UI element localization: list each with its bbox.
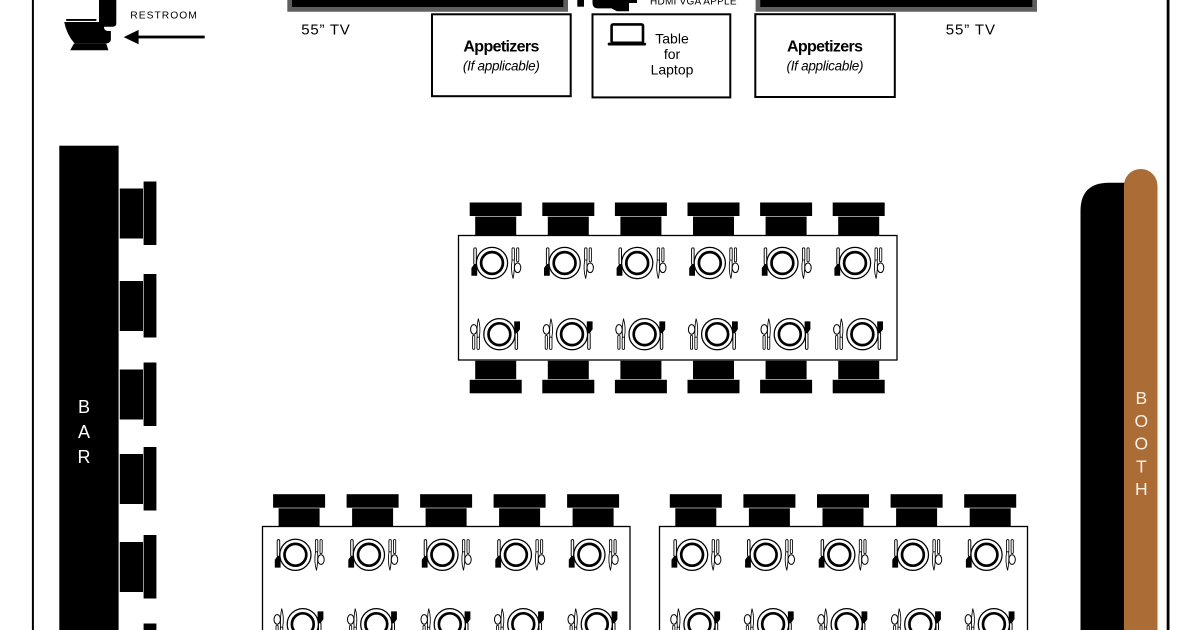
svg-text:(If applicable): (If applicable) bbox=[787, 59, 864, 74]
svg-text:for: for bbox=[664, 46, 681, 62]
svg-text:O: O bbox=[1134, 434, 1148, 454]
svg-text:Appetizers: Appetizers bbox=[787, 38, 863, 55]
svg-text:H: H bbox=[1135, 479, 1148, 499]
svg-text:RESTROOM: RESTROOM bbox=[130, 11, 197, 22]
svg-text:Table: Table bbox=[655, 31, 689, 47]
svg-text:R: R bbox=[78, 447, 91, 467]
svg-text:O: O bbox=[1134, 411, 1148, 431]
svg-text:T: T bbox=[1136, 456, 1147, 476]
svg-text:Laptop: Laptop bbox=[651, 62, 694, 78]
svg-text:(If applicable): (If applicable) bbox=[463, 59, 540, 74]
svg-text:55” TV: 55” TV bbox=[946, 22, 995, 39]
svg-text:HDMI VGA APPLE: HDMI VGA APPLE bbox=[650, 0, 737, 7]
svg-text:A: A bbox=[78, 422, 90, 442]
svg-text:B: B bbox=[78, 397, 90, 417]
svg-text:55” TV: 55” TV bbox=[301, 22, 350, 39]
svg-text:Appetizers: Appetizers bbox=[463, 38, 539, 55]
svg-text:B: B bbox=[1135, 388, 1147, 408]
